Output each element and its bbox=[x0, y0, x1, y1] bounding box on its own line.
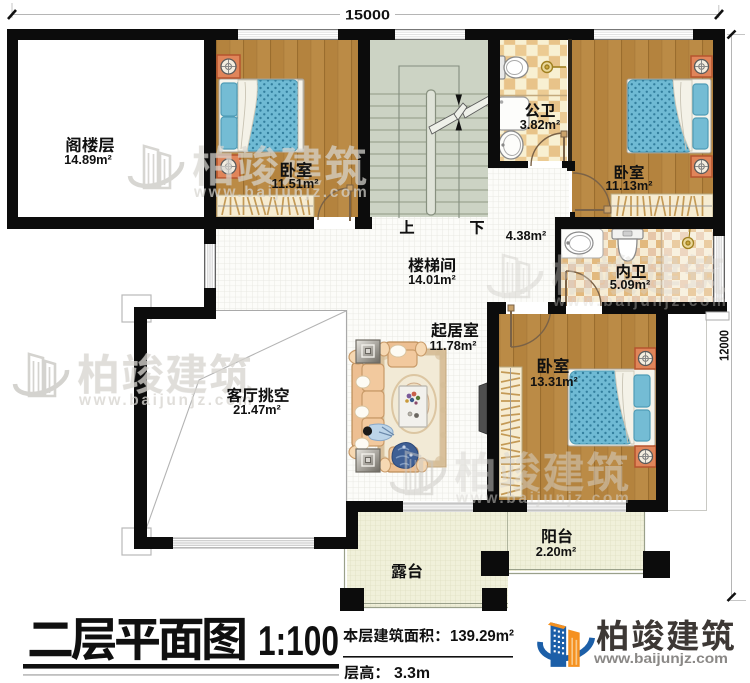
svg-text:www.baijunjz.com: www.baijunjz.com bbox=[78, 392, 254, 409]
svg-text:12000: 12000 bbox=[717, 330, 732, 361]
svg-text:4.38m²: 4.38m² bbox=[506, 228, 547, 243]
svg-text:5.09m²: 5.09m² bbox=[610, 277, 651, 292]
svg-text:www.baijunjz.com: www.baijunjz.com bbox=[455, 490, 631, 507]
svg-text:3.3m: 3.3m bbox=[394, 665, 430, 682]
svg-text:15000: 15000 bbox=[345, 8, 390, 23]
svg-text:1:100: 1:100 bbox=[258, 617, 339, 664]
svg-text:www.baijunjz.com: www.baijunjz.com bbox=[552, 293, 728, 310]
svg-text:14.01m²: 14.01m² bbox=[408, 272, 456, 287]
svg-text:11.78m²: 11.78m² bbox=[430, 338, 477, 353]
svg-text:11.13m²: 11.13m² bbox=[606, 178, 653, 193]
svg-text:3.82m²: 3.82m² bbox=[520, 117, 561, 132]
svg-text:13.31m²: 13.31m² bbox=[530, 374, 578, 389]
svg-text:11.51m²: 11.51m² bbox=[272, 176, 319, 191]
svg-text:14.89m²: 14.89m² bbox=[64, 152, 112, 167]
svg-text:21.47m²: 21.47m² bbox=[233, 402, 281, 417]
svg-text:www.baijunjz.com: www.baijunjz.com bbox=[593, 651, 728, 667]
svg-text:139.29m²: 139.29m² bbox=[450, 628, 514, 645]
svg-text:2.20m²: 2.20m² bbox=[536, 544, 577, 559]
